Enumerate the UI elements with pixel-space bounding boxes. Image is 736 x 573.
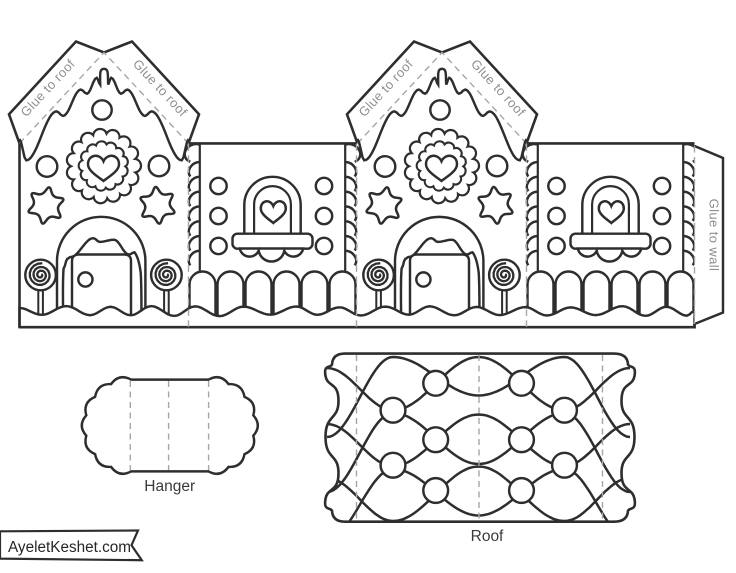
svg-text:Hanger: Hanger	[144, 478, 195, 495]
svg-text:AyeletKeshet.com: AyeletKeshet.com	[8, 539, 131, 556]
svg-text:Glue to wall: Glue to wall	[707, 199, 722, 272]
svg-text:Roof: Roof	[471, 528, 504, 545]
